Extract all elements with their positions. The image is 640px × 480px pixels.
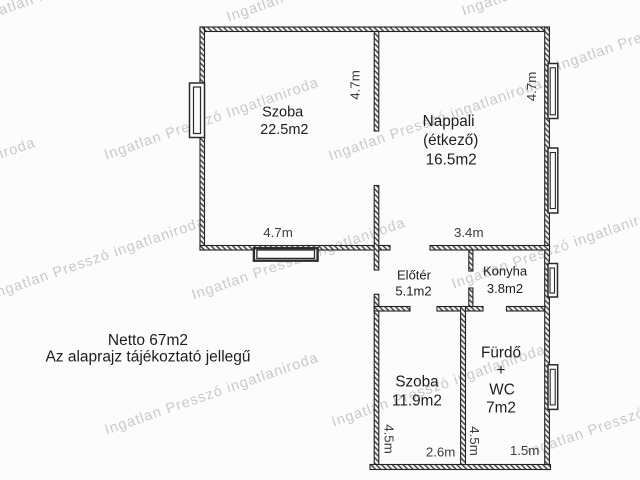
svg-text:22.5m2: 22.5m2 — [260, 122, 308, 138]
svg-text:Az alaprajz tájékoztató jelleg: Az alaprajz tájékoztató jellegű — [45, 349, 250, 366]
svg-text:2.6m: 2.6m — [426, 445, 456, 460]
svg-text:Szoba: Szoba — [395, 374, 439, 391]
svg-text:Szoba: Szoba — [262, 105, 304, 121]
svg-text:4.5m: 4.5m — [467, 426, 482, 456]
svg-text:Fürdő: Fürdő — [481, 345, 521, 362]
svg-text:4.5m: 4.5m — [382, 424, 397, 454]
svg-text:1.5m: 1.5m — [510, 443, 540, 458]
svg-text:5.1m2: 5.1m2 — [395, 284, 431, 299]
svg-text:4.7m: 4.7m — [524, 72, 539, 102]
svg-text:4.7m: 4.7m — [263, 225, 293, 240]
svg-text:7m2: 7m2 — [486, 400, 516, 417]
svg-text:+: + — [497, 362, 506, 379]
svg-text:16.5m2: 16.5m2 — [426, 152, 477, 169]
svg-text:Konyha: Konyha — [483, 264, 528, 279]
svg-text:Előtér: Előtér — [397, 268, 432, 283]
svg-text:3.4m: 3.4m — [454, 225, 484, 240]
svg-text:Netto 67m2: Netto 67m2 — [108, 332, 188, 349]
svg-text:(étkező): (étkező) — [423, 132, 478, 149]
svg-text:4.7m: 4.7m — [348, 70, 363, 100]
svg-text:3.8m2: 3.8m2 — [487, 281, 523, 296]
svg-text:11.9m2: 11.9m2 — [392, 393, 442, 410]
svg-text:Nappali: Nappali — [423, 113, 475, 130]
svg-text:WC: WC — [489, 382, 515, 399]
